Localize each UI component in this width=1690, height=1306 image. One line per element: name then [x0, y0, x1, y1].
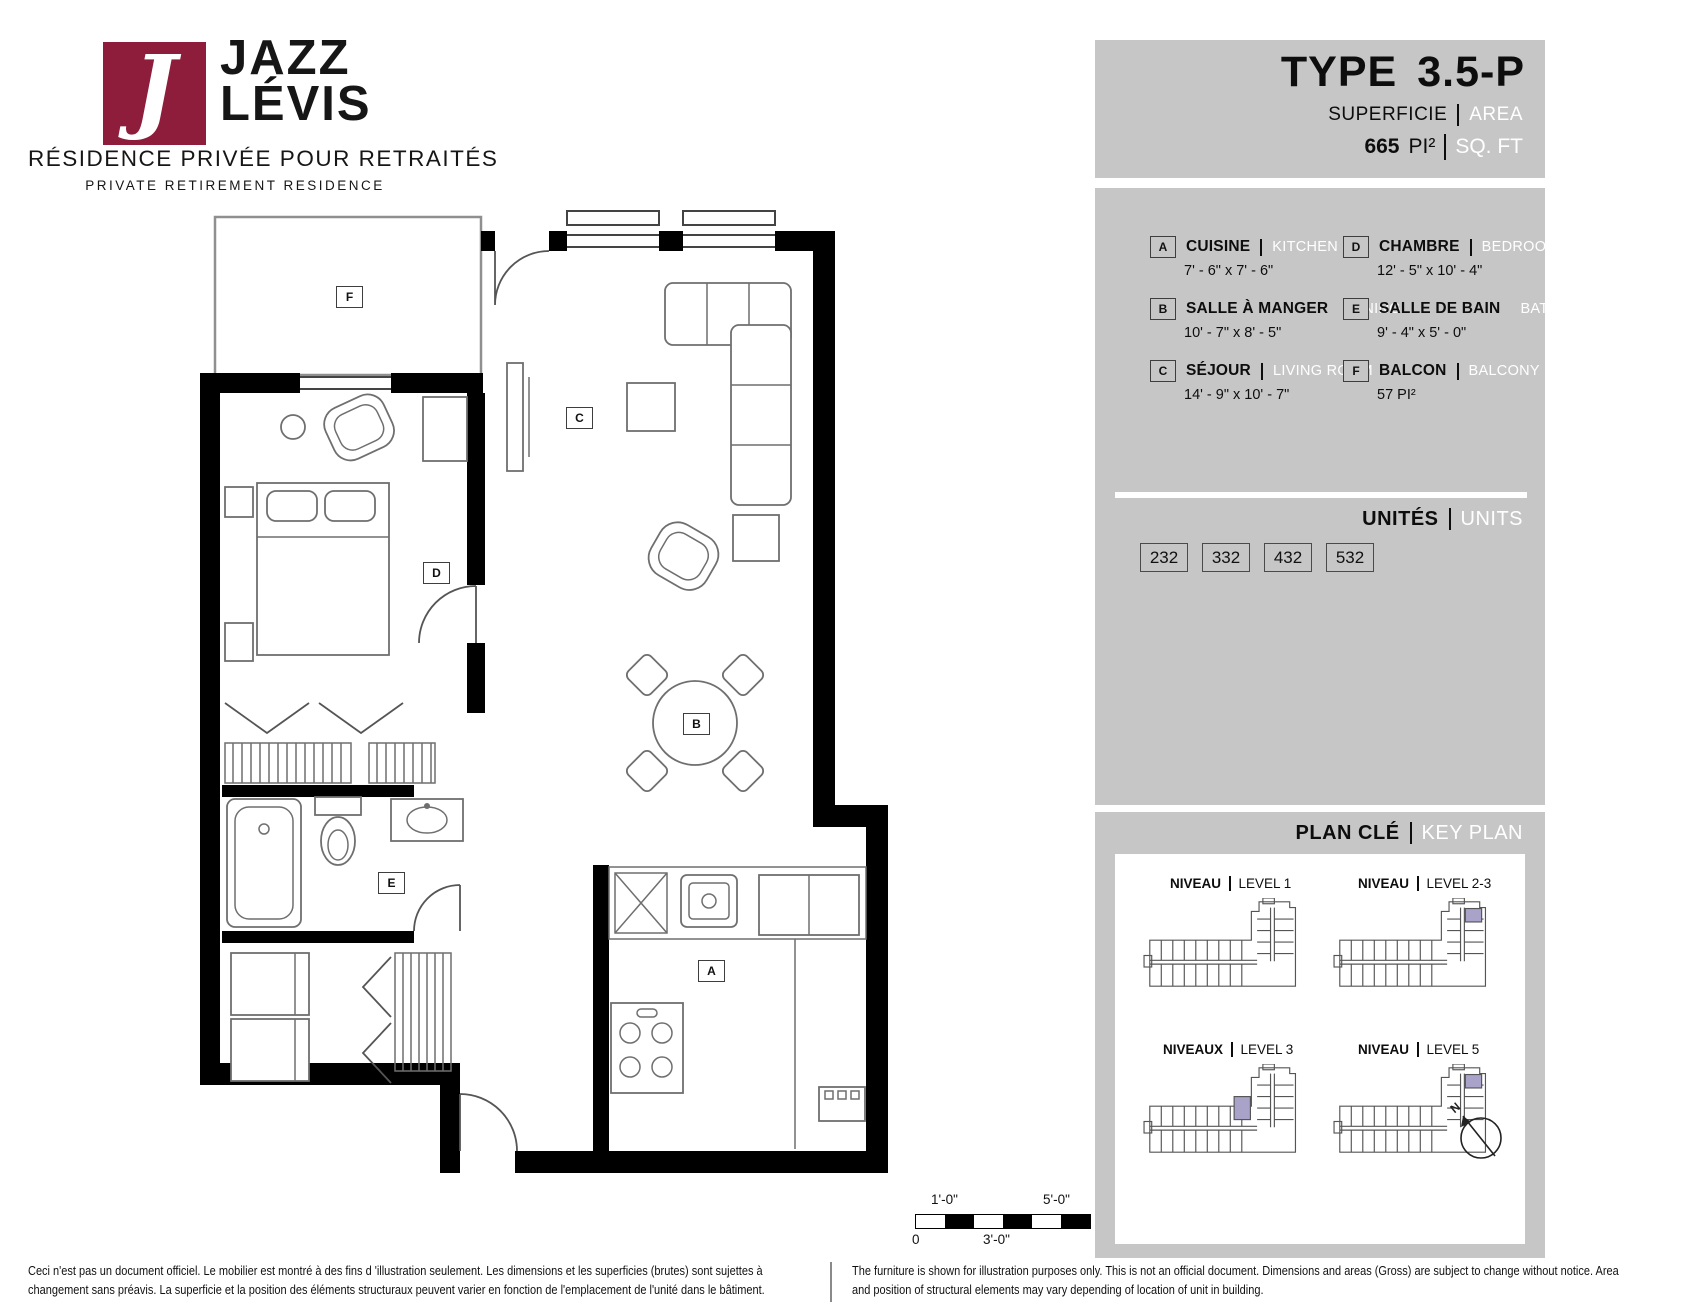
- level-2-3-building-plan: [1333, 898, 1498, 1013]
- toilet: [321, 817, 355, 865]
- legend-room-bathroom: E SALLE DE BAIN BATHROOM 9' - 4" x 5' - …: [1343, 298, 1583, 341]
- accent-chair: [641, 515, 725, 597]
- room-name-fr: SALLE DE BAIN: [1379, 300, 1500, 318]
- brand-taglines: RÉSIDENCE PRIVÉE POUR RETRAITÉS PRIVATE …: [28, 146, 442, 193]
- brochure-page: J JAZZ LÉVIS RÉSIDENCE PRIVÉE POUR RETRA…: [0, 0, 1690, 1306]
- stool: [281, 415, 305, 439]
- nightstand: [225, 487, 253, 517]
- plan-tag-bedroom: D: [423, 562, 450, 584]
- keyplan-box: NIVEAU LEVEL 1 NIVEAU LEVEL 2-3 NIVEAUX …: [1115, 854, 1525, 1244]
- area-value: 665: [1364, 135, 1399, 159]
- brand-name-line1: JAZZ: [220, 36, 372, 82]
- brand-name: JAZZ LÉVIS: [220, 36, 372, 127]
- scale-tick-1ft: 1'-0": [931, 1192, 958, 1207]
- legend-room-balcony: F BALCON BALCONY 57 PI²: [1343, 360, 1583, 403]
- scale-tick-3ft: 3'-0": [983, 1232, 1010, 1247]
- nightstand: [225, 623, 253, 661]
- washer: [231, 953, 309, 1015]
- plan-tag-kitchen: A: [698, 960, 725, 982]
- area-label-row: SUPERFICIE AREA: [1328, 104, 1523, 126]
- bathtub: [227, 799, 301, 927]
- area-label-en: AREA: [1469, 104, 1523, 126]
- keyplan-heading: PLAN CLÉ KEY PLAN: [1296, 822, 1523, 845]
- disclaimer-fr: Ceci n'est pas un document officiel. Le …: [28, 1262, 811, 1300]
- divider: [1457, 104, 1459, 126]
- tagline-fr: RÉSIDENCE PRIVÉE POUR RETRAITÉS: [28, 146, 442, 172]
- room-tag-a: A: [1150, 236, 1176, 258]
- area-label-fr: SUPERFICIE: [1328, 104, 1447, 126]
- level-2-3-label: NIVEAU LEVEL 2-3: [1358, 876, 1491, 891]
- dryer: [231, 1019, 309, 1081]
- bedroom-armchair: [318, 389, 400, 467]
- units-label-en: UNITS: [1461, 508, 1524, 531]
- room-name-en: BATHROOM: [1520, 301, 1605, 317]
- scale-tick-0: 0: [912, 1232, 920, 1247]
- brand-logo: J: [103, 42, 206, 145]
- area-unit-fr: PI²: [1408, 135, 1435, 159]
- keyplan-panel: PLAN CLÉ KEY PLAN NIVEAU LEVEL 1 NIVEAU …: [1095, 812, 1545, 1258]
- level-5-label: NIVEAU LEVEL 5: [1358, 1042, 1479, 1057]
- brand-monogram-icon: J: [133, 43, 177, 135]
- level-3-label: NIVEAUX LEVEL 3: [1163, 1042, 1293, 1057]
- tv-console: [507, 363, 523, 471]
- header-panel: TYPE 3.5-P SUPERFICIE AREA 665 PI² SQ. F…: [1095, 40, 1545, 178]
- dresser: [423, 397, 467, 461]
- unit-number: 532: [1326, 543, 1374, 572]
- coffee-table: [627, 383, 675, 431]
- keyplan-label-fr: PLAN CLÉ: [1296, 822, 1400, 845]
- north-compass-icon: N: [1445, 1094, 1511, 1168]
- room-name-en: KITCHEN: [1272, 239, 1338, 255]
- divider: [1231, 1042, 1233, 1057]
- divider: [1444, 134, 1446, 160]
- room-dims: 57 PI²: [1377, 387, 1583, 403]
- plan-tag-dining: B: [683, 713, 710, 735]
- sofa-chaise: [731, 325, 791, 505]
- plan-tag-balcony: F: [336, 286, 363, 308]
- unit-type-title: TYPE 3.5-P: [1281, 48, 1525, 97]
- room-dims: 12' - 5" x 10' - 4": [1377, 263, 1583, 279]
- divider: [1410, 822, 1412, 844]
- room-name-fr: CHAMBRE: [1379, 238, 1460, 256]
- type-code: 3.5-P: [1417, 48, 1525, 97]
- level-3-building-plan: [1143, 1064, 1308, 1179]
- room-name-fr: SÉJOUR: [1186, 362, 1251, 380]
- area-unit-en: SQ. FT: [1455, 135, 1523, 159]
- room-tag-d: D: [1343, 236, 1369, 258]
- area-value-row: 665 PI² SQ. FT: [1364, 134, 1523, 160]
- disclaimer-en: The furniture is shown for illustration …: [852, 1262, 1622, 1300]
- unit-number: 232: [1140, 543, 1188, 572]
- divider: [1449, 508, 1451, 530]
- dishwasher: [819, 1087, 865, 1121]
- room-name-fr: CUISINE: [1186, 238, 1250, 256]
- plan-tag-bathroom: E: [378, 872, 405, 894]
- type-word: TYPE: [1281, 48, 1397, 97]
- units-heading: UNITÉS UNITS: [1362, 508, 1523, 531]
- level-1-building-plan: [1143, 898, 1308, 1013]
- divider: [1457, 363, 1459, 380]
- divider: [1417, 1042, 1419, 1057]
- legend-room-bedroom: D CHAMBRE BEDROOM 12' - 5" x 10' - 4": [1343, 236, 1583, 279]
- brand-name-line2: LÉVIS: [220, 82, 372, 128]
- scale-tick-5ft: 5'-0": [1043, 1192, 1070, 1207]
- units-label-fr: UNITÉS: [1362, 508, 1438, 531]
- room-name-fr: SALLE À MANGER: [1186, 300, 1328, 318]
- keyplan-label-en: KEY PLAN: [1422, 822, 1523, 845]
- footer-divider: [830, 1262, 832, 1302]
- divider: [1470, 239, 1472, 256]
- plan-tag-living: C: [566, 407, 593, 429]
- room-dims: 9' - 4" x 5' - 0": [1377, 325, 1583, 341]
- divider: [1229, 876, 1231, 891]
- scale-bar-graphic: [915, 1214, 1091, 1229]
- room-tag-c: C: [1150, 360, 1176, 382]
- north-label: N: [1447, 1100, 1463, 1116]
- room-name-en: BEDROOM: [1482, 239, 1559, 255]
- vent-cross: [615, 873, 667, 933]
- unit-number-list: 232 332 432 532: [1140, 543, 1374, 572]
- room-tag-f: F: [1343, 360, 1369, 382]
- side-table: [733, 515, 779, 561]
- unit-number: 432: [1264, 543, 1312, 572]
- legend-panel: A CUISINE KITCHEN 7' - 6" x 7' - 6" B SA…: [1095, 188, 1545, 805]
- divider: [1261, 363, 1263, 380]
- bifold-doors: [225, 703, 403, 733]
- room-name-fr: BALCON: [1379, 362, 1447, 380]
- scale-bar: 1'-0" 5'-0" 0 3'-0": [905, 1192, 1100, 1250]
- divider: [1260, 239, 1262, 256]
- unit-number: 332: [1202, 543, 1250, 572]
- units-divider-line: [1115, 492, 1527, 498]
- room-name-en: BALCONY: [1469, 363, 1540, 379]
- toilet-tank: [315, 797, 361, 815]
- room-tag-e: E: [1343, 298, 1369, 320]
- tagline-en: PRIVATE RETIREMENT RESIDENCE: [28, 178, 442, 193]
- floor-plan-drawing: [195, 205, 895, 1180]
- level-1-label: NIVEAU LEVEL 1: [1170, 876, 1291, 891]
- divider: [1417, 876, 1419, 891]
- room-tag-b: B: [1150, 298, 1176, 320]
